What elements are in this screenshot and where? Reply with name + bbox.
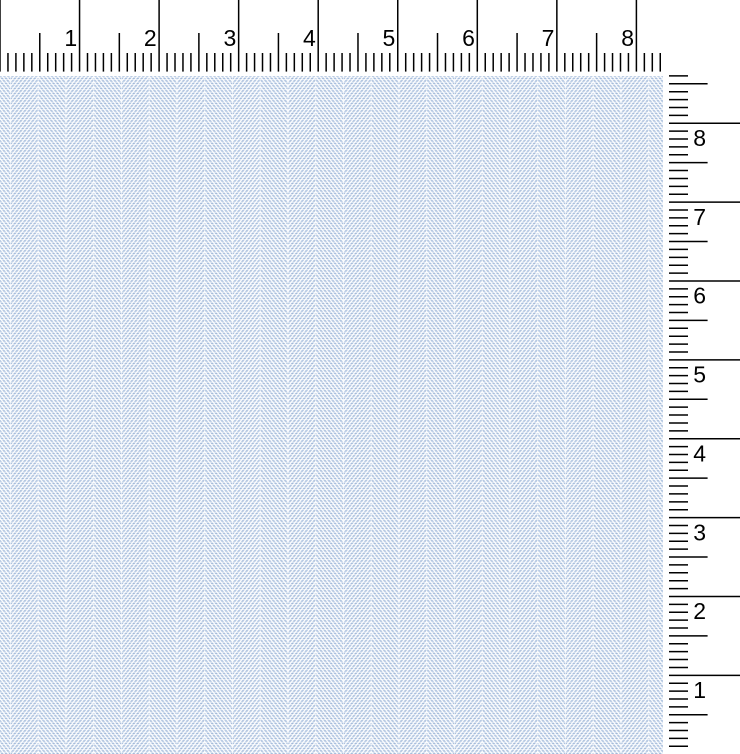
svg-text:7: 7 bbox=[693, 204, 706, 230]
svg-text:8: 8 bbox=[621, 25, 634, 51]
svg-text:4: 4 bbox=[693, 440, 706, 466]
svg-text:4: 4 bbox=[303, 25, 316, 51]
svg-text:1: 1 bbox=[693, 677, 706, 703]
svg-text:2: 2 bbox=[693, 598, 706, 624]
svg-text:6: 6 bbox=[693, 283, 706, 309]
svg-text:7: 7 bbox=[542, 25, 555, 51]
svg-text:3: 3 bbox=[223, 25, 236, 51]
svg-text:3: 3 bbox=[693, 519, 706, 545]
svg-text:1: 1 bbox=[64, 25, 77, 51]
svg-text:8: 8 bbox=[693, 125, 706, 151]
svg-text:2: 2 bbox=[144, 25, 157, 51]
svg-text:6: 6 bbox=[462, 25, 475, 51]
svg-text:5: 5 bbox=[383, 25, 396, 51]
svg-text:5: 5 bbox=[693, 362, 706, 388]
